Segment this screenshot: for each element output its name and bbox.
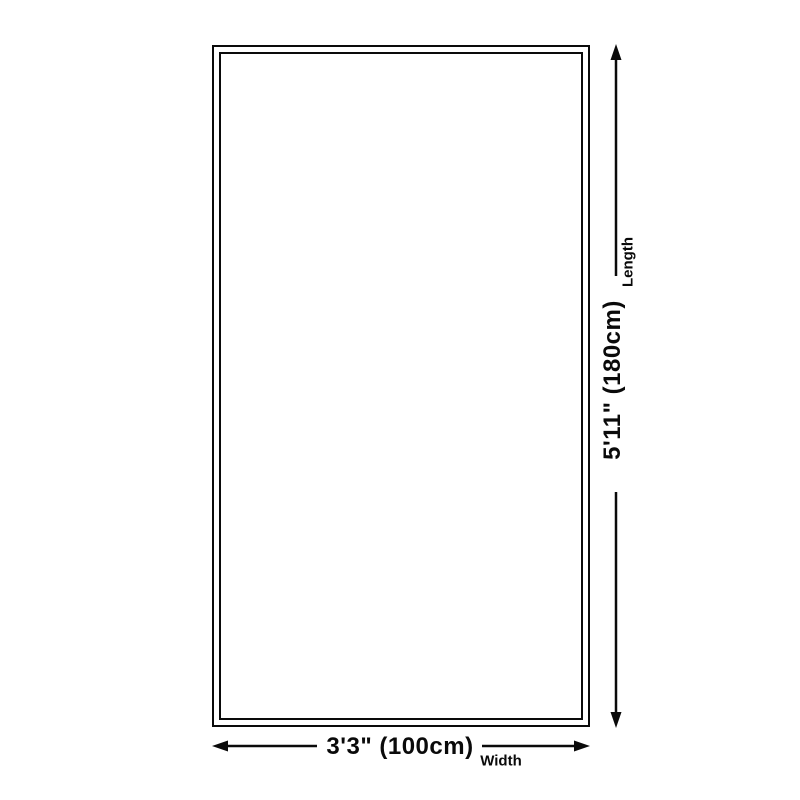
arrow-up-head-icon bbox=[611, 44, 622, 60]
length-dimension-value: 5'11" (180cm) bbox=[601, 300, 625, 460]
arrow-down-head-icon bbox=[611, 712, 622, 728]
dimension-arrows bbox=[0, 0, 800, 800]
arrow-right-head-icon bbox=[574, 741, 590, 752]
length-dimension-label: Length bbox=[621, 237, 636, 287]
width-dimension-value: 3'3" (100cm) bbox=[326, 735, 473, 759]
arrow-left-head-icon bbox=[212, 741, 228, 752]
width-dimension-label: Width bbox=[480, 754, 522, 769]
size-diagram: 5'11" (180cm) Length 3'3" (100cm) Width bbox=[0, 0, 800, 800]
